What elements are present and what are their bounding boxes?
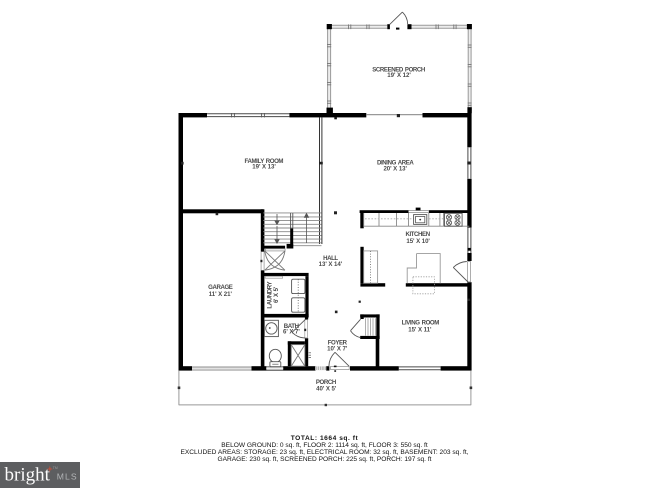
svg-text:19' X 12': 19' X 12' bbox=[387, 72, 411, 79]
svg-text:19' X 13': 19' X 13' bbox=[252, 164, 276, 171]
svg-text:15' X 11': 15' X 11' bbox=[408, 326, 432, 333]
svg-text:bright: bright bbox=[5, 465, 51, 486]
svg-text:15' X 10': 15' X 10' bbox=[406, 238, 430, 245]
svg-text:20' X 13': 20' X 13' bbox=[383, 166, 407, 173]
svg-text:6' X 5': 6' X 5' bbox=[273, 286, 280, 303]
svg-text:TOTAL: 1664 sq. ft: TOTAL: 1664 sq. ft bbox=[291, 435, 359, 442]
svg-text:GARAGE: 230 sq. ft, SCREENED P: GARAGE: 230 sq. ft, SCREENED PORCH: 225 … bbox=[217, 456, 431, 463]
svg-text:40' X 5': 40' X 5' bbox=[316, 385, 337, 392]
svg-text:10' X 7': 10' X 7' bbox=[327, 345, 348, 352]
svg-text:KITCHEN: KITCHEN bbox=[405, 231, 429, 238]
svg-text:TM: TM bbox=[53, 466, 58, 470]
svg-text:13' X 14': 13' X 14' bbox=[319, 261, 343, 268]
svg-text:11' X 21': 11' X 21' bbox=[209, 291, 233, 298]
svg-text:6' X 7': 6' X 7' bbox=[283, 329, 300, 336]
svg-text:MLS: MLS bbox=[57, 471, 78, 481]
